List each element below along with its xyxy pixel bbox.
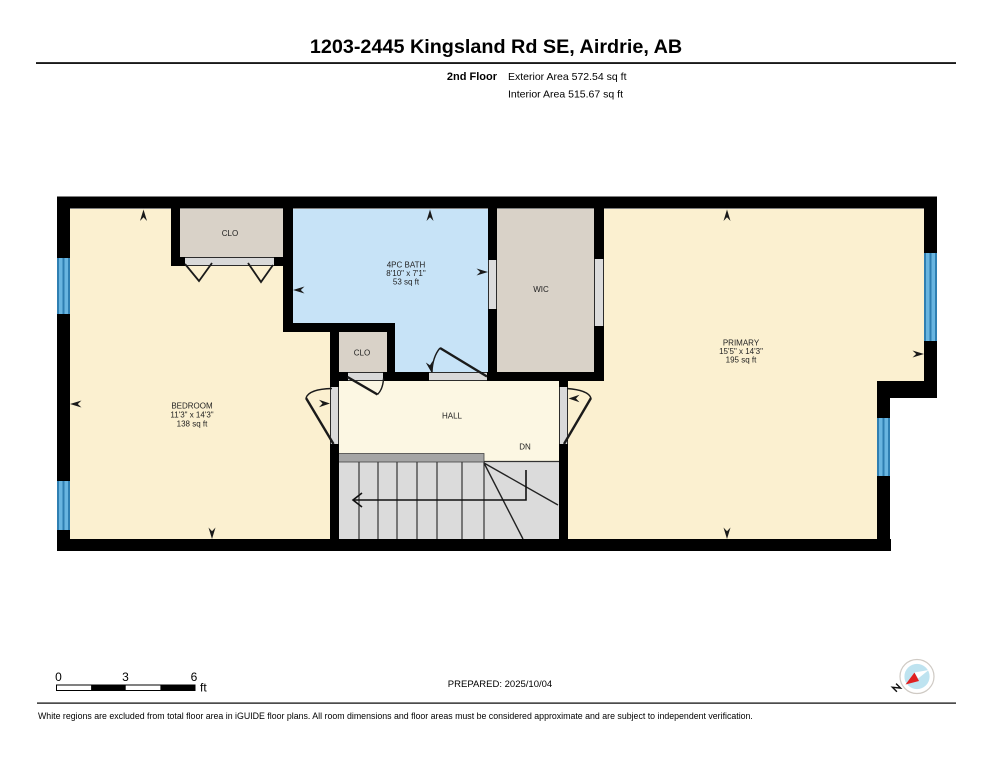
svg-text:WIC: WIC <box>533 285 549 294</box>
svg-text:BEDROOM: BEDROOM <box>171 402 213 411</box>
svg-text:PREPARED: 2025/10/04: PREPARED: 2025/10/04 <box>448 679 552 690</box>
svg-text:DN: DN <box>519 443 531 452</box>
svg-text:53 sq ft: 53 sq ft <box>393 278 420 287</box>
svg-text:CLO: CLO <box>222 229 238 238</box>
svg-text:ft: ft <box>200 681 207 695</box>
svg-text:195 sq ft: 195 sq ft <box>726 356 757 365</box>
svg-text:2nd Floor: 2nd Floor <box>447 71 498 83</box>
svg-text:Exterior Area 572.54 sq ft: Exterior Area 572.54 sq ft <box>508 71 627 83</box>
svg-text:11'3" x 14'3": 11'3" x 14'3" <box>170 411 213 420</box>
svg-text:0: 0 <box>55 670 62 684</box>
svg-text:HALL: HALL <box>442 412 463 421</box>
svg-text:Interior Area 515.67 sq ft: Interior Area 515.67 sq ft <box>508 89 623 101</box>
svg-text:138 sq ft: 138 sq ft <box>177 420 208 429</box>
svg-text:3: 3 <box>122 670 129 684</box>
svg-text:6: 6 <box>191 670 198 684</box>
svg-text:White regions are excluded fro: White regions are excluded from total fl… <box>38 711 753 721</box>
svg-text:CLO: CLO <box>354 349 370 358</box>
svg-text:1203-2445 Kingsland Rd SE, Air: 1203-2445 Kingsland Rd SE, Airdrie, AB <box>310 36 682 58</box>
